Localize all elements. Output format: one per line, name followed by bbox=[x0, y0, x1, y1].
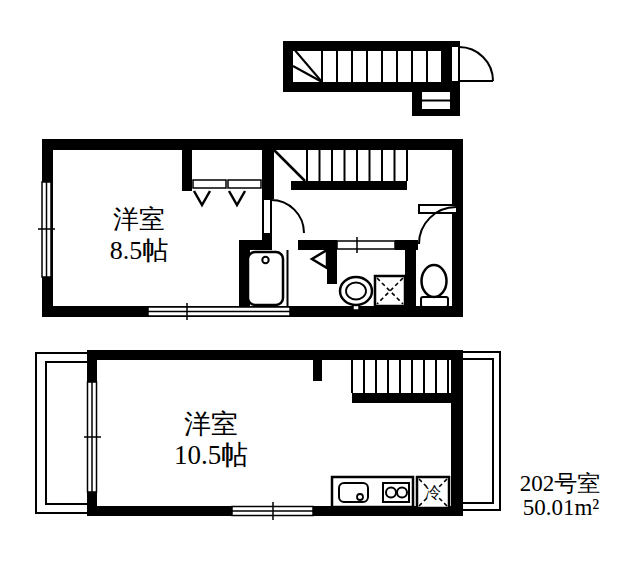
refrigerator-label: 冷 bbox=[425, 484, 441, 501]
unit-info: 202号室 50.01m² bbox=[520, 471, 601, 520]
balcony-left bbox=[36, 353, 88, 513]
balcony-right bbox=[463, 352, 500, 510]
closet-hanger-icon bbox=[229, 191, 245, 205]
folding-door-icon bbox=[312, 250, 327, 268]
door-leaf bbox=[263, 199, 271, 234]
wall bbox=[182, 139, 192, 191]
wall bbox=[395, 240, 418, 250]
room-door bbox=[263, 199, 304, 234]
balcony-left-inner bbox=[46, 362, 88, 504]
sliding-door bbox=[337, 241, 395, 249]
floorplan-drawing: 洋室 8.5帖 bbox=[0, 0, 640, 561]
unit-area: 50.01m² bbox=[523, 495, 600, 520]
wall bbox=[291, 181, 407, 190]
room-name-upper: 洋室 bbox=[113, 205, 165, 234]
wall bbox=[87, 350, 463, 360]
room-name-lower: 洋室 bbox=[184, 409, 238, 439]
entrance-door-leaf bbox=[451, 46, 459, 82]
lower-floor-plan: 冷 洋室 10.5帖 bbox=[36, 350, 500, 520]
room-size-upper: 8.5帖 bbox=[110, 236, 169, 265]
kitchen-sink-icon bbox=[339, 483, 368, 502]
stove-burner-icon bbox=[397, 488, 407, 498]
balcony-right-inner bbox=[463, 359, 493, 503]
stove-burner-icon bbox=[386, 488, 396, 498]
wall bbox=[452, 139, 463, 317]
door-arc bbox=[271, 200, 304, 233]
entrance-stairs bbox=[283, 41, 493, 116]
wall bbox=[298, 240, 337, 250]
unit-number: 202号室 bbox=[520, 471, 601, 496]
floorplan-canvas: 洋室 8.5帖 bbox=[0, 0, 640, 561]
wall bbox=[352, 393, 451, 403]
wall bbox=[313, 360, 322, 381]
washbasin-icon bbox=[340, 277, 372, 305]
closet-hanger-icon bbox=[194, 191, 210, 205]
sink-drain-icon bbox=[357, 494, 363, 500]
bathtub-faucet-icon bbox=[262, 257, 268, 263]
toilet-icon bbox=[422, 265, 447, 297]
room-size-lower: 10.5帖 bbox=[174, 440, 248, 470]
wall bbox=[42, 139, 463, 150]
toilet-base bbox=[421, 297, 448, 307]
wall bbox=[405, 249, 416, 307]
staircase-lower bbox=[352, 360, 448, 393]
upper-floor-plan: 洋室 8.5帖 bbox=[38, 139, 463, 320]
entrance-door-arc bbox=[459, 47, 493, 81]
kitchen: 冷 bbox=[332, 477, 449, 508]
closet-sliding-door bbox=[228, 180, 261, 188]
window-left-lower bbox=[84, 382, 101, 492]
closet bbox=[193, 180, 261, 205]
bath-sliding-door bbox=[337, 237, 395, 253]
wall bbox=[327, 249, 337, 284]
wall bbox=[451, 350, 463, 516]
bathroom bbox=[248, 250, 448, 310]
toilet-door bbox=[419, 205, 457, 244]
window-bottom-lower bbox=[232, 502, 313, 520]
closet-sliding-door bbox=[193, 180, 226, 188]
